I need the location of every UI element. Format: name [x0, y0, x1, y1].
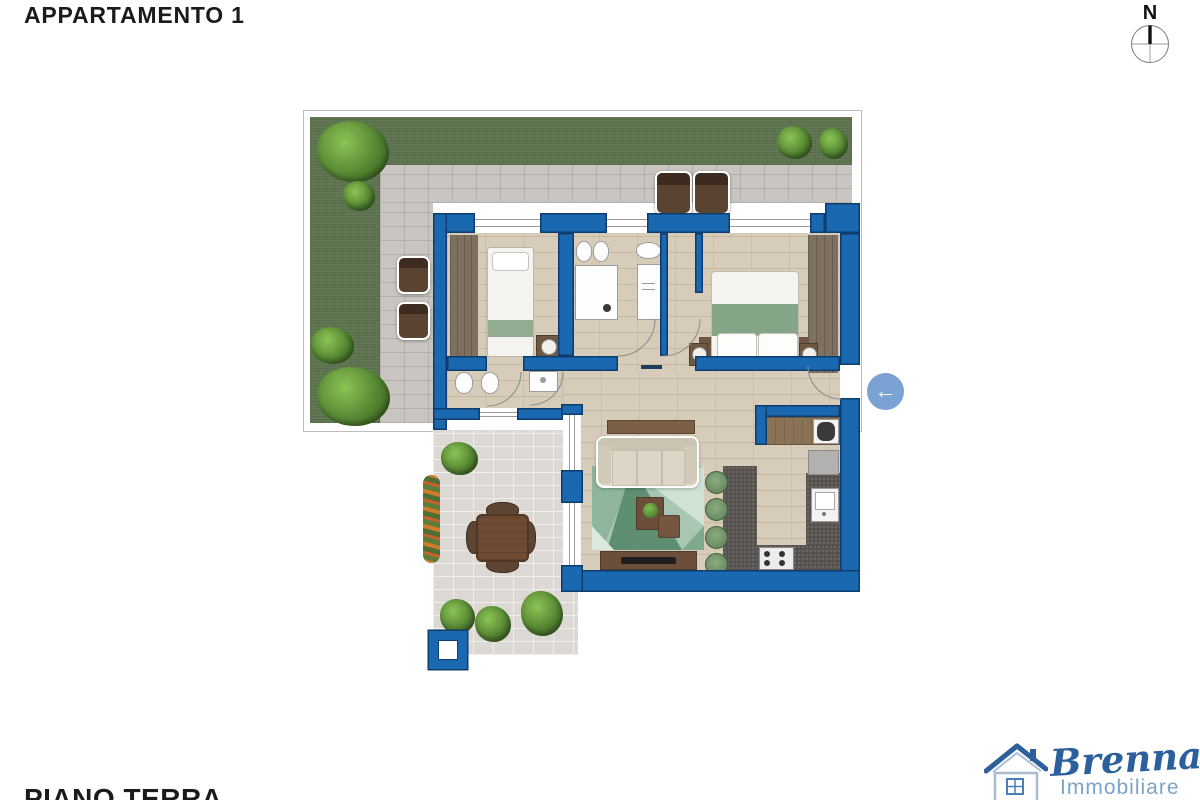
garden-palm [343, 181, 375, 211]
floor-plan-page: APPARTAMENTO 1 PIANO TERRA N [0, 0, 1200, 800]
compass-icon [1130, 24, 1170, 64]
compass-north-label: N [1127, 2, 1173, 24]
garden-bush [317, 367, 390, 426]
garden-grass-top [310, 117, 852, 165]
arrow-left-icon: ← [867, 373, 904, 410]
terrace-bush [475, 606, 511, 642]
garden-palm [311, 327, 354, 364]
floor-label: PIANO TERRA [24, 783, 222, 800]
page-title: APPARTAMENTO 1 [24, 2, 245, 29]
garden-path-top [380, 165, 852, 203]
garden-palm [777, 126, 812, 159]
terrace-post [429, 631, 467, 669]
garden-palm [819, 128, 848, 159]
brand-name: Brenna [1049, 739, 1200, 780]
arrow-glyph: ← [875, 378, 897, 403]
brand-text: Brenna Immobiliare [1048, 743, 1200, 800]
door-arcs [420, 200, 880, 610]
garden-bush [317, 121, 389, 182]
compass: N [1127, 2, 1173, 69]
house-logo-icon [984, 743, 1048, 800]
brand-logo: Brenna Immobiliare [984, 743, 1200, 800]
